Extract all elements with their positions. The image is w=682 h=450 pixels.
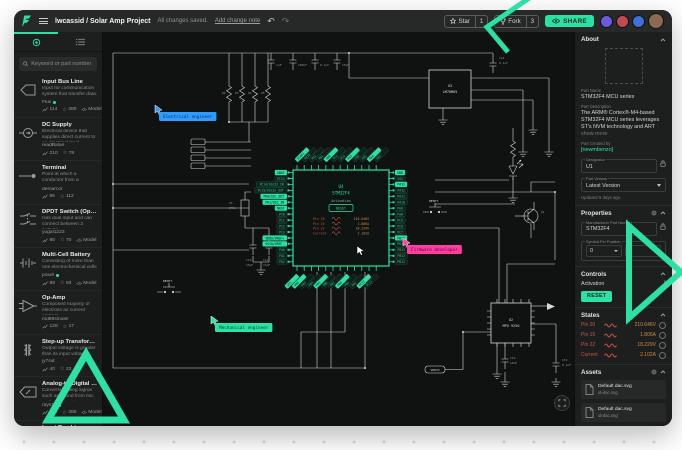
share-button[interactable]: SHARE xyxy=(545,15,594,27)
svg-text:MPU 9250: MPU 9250 xyxy=(503,324,520,328)
svg-text:PC7: PC7 xyxy=(397,230,403,234)
part-name: Analog-to-Digital Converter xyxy=(42,381,98,387)
probe-icon[interactable] xyxy=(659,342,666,349)
about-title: About xyxy=(581,36,599,43)
controls-title: Controls xyxy=(581,271,606,278)
show-more-link[interactable]: show more xyxy=(581,131,607,137)
parts-sidebar: Input Bus Line Input for communication s… xyxy=(14,32,103,426)
mpn-field[interactable]: Manufacturer Part Number STM32F4 xyxy=(581,222,657,236)
asset-card[interactable]: Default dac.svgid-dac.svg xyxy=(581,403,666,422)
part-symbol-icon xyxy=(17,209,39,244)
svg-text:PC15/OSC32_OUT: PC15/OSC32_OUT xyxy=(258,189,284,193)
svg-text:PC8: PC8 xyxy=(397,224,403,228)
svg-text:RESET: RESET xyxy=(429,199,438,203)
star-icon: ☆ xyxy=(62,410,66,416)
part-name: Input Bus Line xyxy=(42,425,98,426)
schematic-drawing: VDD331uF100uF0.1uF15pFR2R3R4R5C140.1uFX1… xyxy=(103,32,576,426)
svg-text:LM78M05: LM78M05 xyxy=(443,90,458,94)
svg-text:Pin 22: Pin 22 xyxy=(313,227,325,231)
usage-icon xyxy=(42,367,48,372)
sidebar-tabs xyxy=(14,32,102,52)
svg-text:PB11: PB11 xyxy=(397,260,405,264)
svg-text:VDD33: VDD33 xyxy=(430,368,439,372)
part-name: Input Bus Line xyxy=(42,79,98,85)
flux-logo-icon[interactable] xyxy=(22,15,32,27)
svg-text:PA10: PA10 xyxy=(397,201,405,205)
svg-text:U2: U2 xyxy=(509,318,513,322)
part-stats: 114 ☆380 </>Model xyxy=(42,410,98,416)
chevron-down-icon xyxy=(657,184,661,187)
mcu-u4[interactable]: U4STM32F4ActivationRESETPin 20210.646VPi… xyxy=(254,147,407,289)
asset-card[interactable]: Default dac.svgid-dac.svg xyxy=(581,380,666,399)
app-window: lwcassid / Solar Amp Project All changes… xyxy=(14,10,672,426)
usage-icon xyxy=(42,194,48,199)
svg-text:PH0/OSC_OUT: PH0/OSC_OUT xyxy=(263,195,284,199)
star-button[interactable]: Star 1 xyxy=(444,15,488,28)
svg-text:RESET: RESET xyxy=(163,279,172,283)
svg-text:PA0: PA0 xyxy=(279,248,285,252)
part-author: md89smuler xyxy=(42,317,98,322)
svg-text:C11: C11 xyxy=(263,258,269,262)
pin-position-field: Symbol Pin Position 0 0 xyxy=(581,241,666,261)
imu-u2[interactable]: U2MPU 9250 xyxy=(487,299,535,347)
file-icon xyxy=(585,384,594,395)
svg-text:PC1: PC1 xyxy=(279,218,285,222)
gear-icon[interactable] xyxy=(651,210,657,216)
svg-text:PB12: PB12 xyxy=(397,254,405,258)
svg-text:0.1uF: 0.1uF xyxy=(499,61,508,65)
star-icon: ☆ xyxy=(63,150,67,156)
svg-text:PA13: PA13 xyxy=(397,183,405,187)
svg-text:C14: C14 xyxy=(499,56,505,60)
part-list-item[interactable]: Input Bus Line Input for communication s… xyxy=(14,75,102,118)
top-toolbar: lwcassid / Solar Amp Project All changes… xyxy=(14,10,672,32)
collapse-icon[interactable] xyxy=(660,272,666,276)
svg-text:PA9: PA9 xyxy=(397,207,403,211)
part-description: Electrical device that supplies direct c… xyxy=(42,129,98,142)
svg-text:U3: U3 xyxy=(448,84,452,88)
undo-icon[interactable]: ↶ xyxy=(267,17,275,26)
part-author: demarcor xyxy=(42,187,98,192)
part-name: DPDT Switch (Open) xyxy=(42,209,98,215)
code-icon: </> xyxy=(81,107,86,112)
part-symbol-icon xyxy=(17,165,39,200)
svg-text:Pin 20: Pin 20 xyxy=(313,217,325,221)
part-symbol-icon xyxy=(17,295,39,330)
part-description: Consisting of more than one electrochemi… xyxy=(42,259,98,271)
code-icon: </> xyxy=(76,238,81,243)
star-icon: ☆ xyxy=(60,366,64,372)
part-thumbnail xyxy=(605,48,643,84)
svg-text:VDD: VDD xyxy=(397,171,403,175)
usage-icon xyxy=(42,324,48,329)
part-description: Has dual input and can connect between 2… xyxy=(42,216,98,229)
part-author: jy7sid xyxy=(42,359,98,364)
menu-icon[interactable] xyxy=(39,18,48,24)
list-icon xyxy=(76,38,85,46)
fork-count: 3 xyxy=(526,16,538,27)
save-status: All changes saved. xyxy=(157,18,207,24)
avatar[interactable] xyxy=(632,15,645,28)
part-symbol-icon xyxy=(17,425,39,426)
star-icon: ☆ xyxy=(63,324,67,330)
state-row: Pin 22 18.229V xyxy=(581,342,666,349)
part-symbol-icon xyxy=(17,339,39,373)
part-description: Converts analog signal such as sound fro… xyxy=(42,388,98,401)
assets-section: Assets Default dac.svgid-dac.svg Default… xyxy=(575,365,672,426)
part-stats: 210 ☆78 </> xyxy=(42,150,98,156)
svg-text:15pF: 15pF xyxy=(342,63,349,67)
svg-text:STM32F4: STM32F4 xyxy=(332,191,350,196)
svg-text:8MHz: 8MHz xyxy=(229,206,236,210)
svg-text:PA2: PA2 xyxy=(279,260,285,264)
collapse-icon[interactable] xyxy=(660,38,666,42)
svg-text:PA8: PA8 xyxy=(397,212,403,216)
part-description: Point at which a conductor from a compon… xyxy=(42,172,98,185)
svg-text:R3: R3 xyxy=(235,91,239,95)
part-name: Op-Amp xyxy=(42,295,98,301)
usage-icon xyxy=(42,151,48,156)
part-author: readBalan xyxy=(42,143,98,148)
probe-icon[interactable] xyxy=(659,332,666,339)
svg-text:C19: C19 xyxy=(562,358,568,362)
part-name: Step-up Transformer xyxy=(42,339,98,345)
add-change-note-link[interactable]: Add change note xyxy=(215,18,260,24)
svg-text:NRST: NRST xyxy=(277,207,285,211)
part-description: Input for communication system that tran… xyxy=(42,86,98,98)
svg-text:RESET: RESET xyxy=(336,207,346,211)
part-list-item[interactable]: Multi-Cell Battery Consisting of more th… xyxy=(14,248,102,291)
part-stats: 40 ☆23 </> xyxy=(42,366,98,372)
state-row: Pin 15 1.806A xyxy=(581,332,666,339)
svg-text:PA12: PA12 xyxy=(397,189,405,193)
properties-title: Properties xyxy=(581,210,612,217)
svg-text:R5: R5 xyxy=(261,91,265,95)
part-author: yugal1223 xyxy=(42,230,98,235)
part-symbol-icon xyxy=(17,122,39,157)
project-title[interactable]: lwcassid / Solar Amp Project xyxy=(55,18,150,25)
waveform-icon xyxy=(604,333,617,338)
svg-text:X1: X1 xyxy=(229,201,233,205)
eye-icon xyxy=(552,18,560,24)
star-icon: ☆ xyxy=(62,107,66,113)
svg-text:U4: U4 xyxy=(338,184,344,189)
svg-text:Current: Current xyxy=(313,231,327,235)
usage-icon xyxy=(42,107,48,112)
svg-text:Electrical engineer: Electrical engineer xyxy=(163,114,213,120)
part-name-value: STM32F4 MCU series xyxy=(581,94,666,101)
control-indicator-icon xyxy=(664,280,666,288)
part-stats: 114 ☆380 </>Model xyxy=(42,107,98,113)
part-author: poiu9 xyxy=(42,273,98,278)
page-background: lwcassid / Solar Amp Project All changes… xyxy=(0,0,682,450)
svg-text:PA1: PA1 xyxy=(279,254,285,258)
part-stats: 128 ☆17 </> xyxy=(42,324,98,330)
file-icon xyxy=(585,407,594,418)
waveform-icon xyxy=(604,343,617,348)
part-list-item[interactable]: Terminal Point at which a conductor from… xyxy=(14,161,102,205)
part-desc-label: Part Description xyxy=(581,104,666,109)
code-icon: </> xyxy=(76,281,81,286)
states-title: States xyxy=(581,312,600,319)
collapse-icon[interactable] xyxy=(660,370,666,374)
fork-icon xyxy=(500,18,506,25)
svg-text:210.646V: 210.646V xyxy=(354,217,369,221)
states-section: States Pin 20 210.646V Pin 15 1.806A Pin… xyxy=(575,308,672,365)
activation-label: Activation xyxy=(581,281,604,287)
redo-icon[interactable]: ↷ xyxy=(282,17,290,26)
zoom-to-fit-button[interactable] xyxy=(554,395,570,411)
gear-icon[interactable] xyxy=(651,369,657,375)
avatar[interactable] xyxy=(600,15,613,28)
search-icon xyxy=(23,61,28,67)
svg-text:15pF: 15pF xyxy=(246,263,253,267)
regulator-u3[interactable]: U3LM78M05 xyxy=(429,70,471,108)
search-input[interactable] xyxy=(31,61,93,67)
assets-title: Assets xyxy=(581,369,601,376)
part-symbol-icon xyxy=(17,381,39,416)
collapse-icon[interactable] xyxy=(660,313,666,317)
fork-button[interactable]: Fork 3 xyxy=(494,15,539,28)
inspector-panel: About Part Name STM32F4 MCU series Part … xyxy=(574,32,672,426)
fit-view-icon xyxy=(558,399,566,407)
collaborator-cursor: Firmware developer xyxy=(403,238,462,254)
part-version-select[interactable]: Part Version Latest Version xyxy=(581,178,666,192)
part-symbol-icon xyxy=(17,252,39,286)
part-author: Flux xyxy=(42,100,98,105)
svg-text:Mechanical engineer: Mechanical engineer xyxy=(219,325,269,331)
usage-icon xyxy=(42,281,48,286)
part-list-item[interactable]: Step-up Transformer Output voltage is gr… xyxy=(14,335,102,378)
svg-text:1uF: 1uF xyxy=(276,63,282,67)
svg-text:C10: C10 xyxy=(246,258,252,262)
svg-text:PC14/OSC32_IN: PC14/OSC32_IN xyxy=(260,183,284,187)
svg-text:Pin 15: Pin 15 xyxy=(313,222,325,226)
collapse-icon[interactable] xyxy=(660,211,666,215)
svg-text:VBAT: VBAT xyxy=(277,171,285,175)
svg-text:PB13: PB13 xyxy=(397,248,405,252)
verified-dot-icon xyxy=(58,404,61,407)
usage-icon xyxy=(42,410,48,415)
svg-text:PH1/OSC_IN: PH1/OSC_IN xyxy=(265,201,284,205)
part-description: Composed majority of electrons as curren… xyxy=(42,302,98,315)
collaborator-cursor: Electrical engineer xyxy=(155,105,216,121)
part-name-label: Part Name xyxy=(581,88,666,93)
part-list: Input Bus Line Input for communication s… xyxy=(14,75,102,426)
svg-text:Q1: Q1 xyxy=(541,210,545,214)
star-icon: ☆ xyxy=(60,237,64,243)
svg-text:1.806A: 1.806A xyxy=(357,222,369,226)
lock-icon xyxy=(660,160,666,167)
svg-text:C16: C16 xyxy=(510,356,516,360)
part-stats: 96 ☆112 </> xyxy=(42,194,98,200)
svg-text:2.102A: 2.102A xyxy=(357,231,369,235)
svg-text:PC0: PC0 xyxy=(279,212,285,216)
part-symbol-icon xyxy=(17,79,39,113)
target-icon xyxy=(32,38,41,47)
svg-text:0.1uF: 0.1uF xyxy=(562,363,571,367)
controls-section: Controls Activation RESET xyxy=(575,267,672,308)
svg-text:100uF: 100uF xyxy=(298,63,307,67)
part-name: DC Supply xyxy=(42,122,98,128)
svg-text:PC2: PC2 xyxy=(279,224,285,228)
avatar[interactable] xyxy=(648,13,664,29)
part-list-item[interactable]: Input Bus Line Input for communication s… xyxy=(14,421,102,426)
svg-text:Activation: Activation xyxy=(331,199,350,203)
part-desc-value: The ARM® Cortex®-M4-based STM32F4 MCU se… xyxy=(581,110,666,138)
stepper-icon xyxy=(653,250,657,252)
tab-layers-list[interactable] xyxy=(58,32,102,51)
part-description: Output voltage is greater than its input… xyxy=(42,346,98,358)
part-name: Multi-Cell Battery xyxy=(42,252,98,258)
created-by-value[interactable]: [newmbenzo] xyxy=(581,147,666,154)
svg-text:VSSA/VREF-: VSSA/VREF- xyxy=(265,242,284,246)
part-list-item[interactable]: Op-Amp Composed majority of electrons as… xyxy=(14,291,102,335)
svg-text:18.229V: 18.229V xyxy=(356,227,370,231)
part-name: Terminal xyxy=(42,165,98,171)
updated-text: Updated 5 days ago xyxy=(581,195,666,200)
properties-section: Properties Manufacturer Part Number STM3… xyxy=(575,206,672,267)
probe-icon[interactable] xyxy=(659,322,666,329)
svg-text:10uF: 10uF xyxy=(510,361,517,365)
waveform-icon xyxy=(604,323,617,328)
usage-icon xyxy=(42,238,48,243)
designator-field[interactable]: Designator U1 xyxy=(581,159,657,173)
svg-text:PA11: PA11 xyxy=(397,195,405,199)
part-list-item[interactable]: Analog-to-Digital Converter Converts ana… xyxy=(14,377,102,421)
svg-text:R4: R4 xyxy=(248,91,252,95)
part-author: rays11 xyxy=(42,403,98,408)
svg-text:PC9: PC9 xyxy=(397,218,403,222)
pin-y-input[interactable]: 0 xyxy=(625,245,661,257)
reset-button[interactable]: RESET xyxy=(581,291,612,302)
probe-icon[interactable] xyxy=(659,352,666,359)
avatar[interactable] xyxy=(616,15,629,28)
svg-text:15pF: 15pF xyxy=(263,263,270,267)
verified-dot-icon xyxy=(56,274,59,277)
svg-text:D2: D2 xyxy=(519,162,523,166)
state-row: Current 2.102A xyxy=(581,352,666,359)
code-icon: </> xyxy=(81,410,86,415)
lock-icon xyxy=(660,223,666,230)
star-icon: ☆ xyxy=(60,194,64,200)
collaborator-cursor: Mechanical engineer xyxy=(211,316,272,332)
svg-text:R2: R2 xyxy=(222,91,226,95)
collaborator-avatars xyxy=(600,13,664,29)
tab-parts-browser[interactable] xyxy=(14,32,58,51)
svg-text:Firmware developer: Firmware developer xyxy=(411,247,458,253)
state-row: Pin 20 210.646V xyxy=(581,322,666,329)
verified-dot-icon xyxy=(53,101,56,104)
stepper-icon xyxy=(614,250,618,252)
waveform-icon xyxy=(604,353,617,358)
svg-text:VSS: VSS xyxy=(397,177,403,181)
part-search[interactable] xyxy=(19,57,97,71)
star-icon: ☆ xyxy=(60,280,64,286)
schematic-canvas[interactable]: VDD331uF100uF0.1uF15pFR2R3R4R5C140.1uFX1… xyxy=(103,32,574,426)
star-count: 1 xyxy=(475,16,487,27)
star-icon xyxy=(450,18,456,24)
pin-x-input[interactable]: 0 xyxy=(586,245,622,257)
svg-text:PC13: PC13 xyxy=(277,177,285,181)
part-list-item[interactable]: DPDT Switch (Open) Has dual input and ca… xyxy=(14,205,102,249)
svg-text:0.1uF: 0.1uF xyxy=(320,63,329,67)
svg-text:PC3: PC3 xyxy=(279,230,285,234)
created-by-label: Part Created by xyxy=(581,141,666,146)
part-stats: 86 ☆70 </>Model xyxy=(42,237,98,243)
about-section: About Part Name STM32F4 MCU series Part … xyxy=(575,32,672,206)
part-list-item[interactable]: DC Supply Electrical device that supplie… xyxy=(14,118,102,162)
svg-text:VDDA/VREF+: VDDA/VREF+ xyxy=(265,236,284,240)
part-stats: 88 ☆93 </>Model xyxy=(42,280,98,286)
